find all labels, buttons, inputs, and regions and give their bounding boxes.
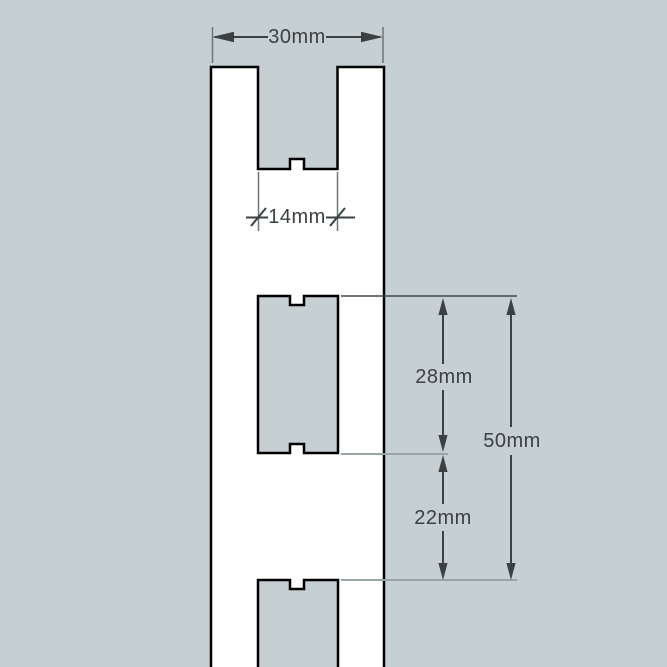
arrowhead-left-icon <box>212 32 234 42</box>
arrowhead-right-icon <box>361 32 383 42</box>
arrowhead-up-icon <box>438 455 447 472</box>
dim-label-slot-pitch: 50mm <box>483 431 541 451</box>
arrowhead-down-icon <box>438 563 447 580</box>
rail-profile <box>211 67 384 667</box>
drawing-canvas: 30mm 14mm 28mm 22mm 50mm <box>0 0 667 667</box>
arrowhead-down-icon <box>506 563 515 580</box>
dim-label-overall-width: 30mm <box>268 27 326 47</box>
dim-label-slot-width: 14mm <box>268 207 326 227</box>
dim-label-slot-height: 28mm <box>415 367 473 387</box>
arrowhead-up-icon <box>506 298 515 315</box>
arrowhead-down-icon <box>438 435 447 452</box>
arrowhead-up-icon <box>438 298 447 315</box>
dim-label-slot-gap: 22mm <box>414 508 472 528</box>
technical-drawing <box>0 0 667 667</box>
